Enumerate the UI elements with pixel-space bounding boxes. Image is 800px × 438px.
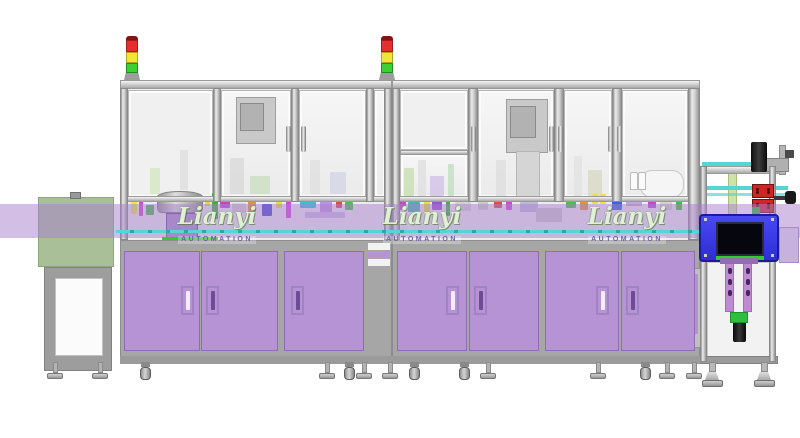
cabinet-door-handle (206, 286, 219, 315)
cabinet-door-handle (291, 286, 304, 315)
lens-column (743, 262, 752, 312)
leveling-foot (478, 362, 498, 379)
machine-part (418, 160, 426, 196)
lens-mount (730, 312, 748, 323)
machine-part (180, 150, 188, 190)
cabinet-door-handle (626, 286, 639, 315)
lens-column (725, 262, 734, 312)
handwheel (785, 191, 796, 204)
station-post (700, 166, 707, 362)
leveling-foot (90, 362, 110, 379)
door-handle (608, 126, 613, 152)
watermark-subtitle: AUTOMATION (178, 236, 256, 244)
tower-base (124, 73, 140, 80)
machine-part (574, 156, 582, 196)
leveling-foot (684, 362, 704, 379)
camera-window (716, 222, 764, 256)
door-handle (286, 126, 291, 152)
machine-part (448, 164, 454, 196)
tower-red-light (126, 40, 138, 52)
tower-yellow-light (381, 52, 393, 63)
machine-part (150, 168, 160, 194)
leveling-foot (588, 362, 608, 379)
caster-wheel (454, 362, 474, 380)
caster-wheel (635, 362, 655, 380)
station-side-panel (779, 227, 799, 263)
watermark: Lianyi AUTOMATION (358, 206, 486, 240)
hmi-screen (240, 103, 264, 131)
cad-scene: Lianyi AUTOMATION Lianyi AUTOMATION Lian… (0, 0, 800, 438)
interior-tank (640, 170, 684, 198)
machine-part (250, 176, 270, 194)
machine-part (404, 168, 414, 196)
machine-1-frame-post (366, 88, 374, 202)
camera-lens (733, 323, 746, 342)
machine-1-control-door (128, 90, 213, 198)
watermark-brand: Lianyi (153, 206, 281, 228)
watermark-brand: Lianyi (358, 206, 486, 228)
column-plate (720, 258, 758, 264)
junction-stripe (368, 259, 390, 266)
machine-2-top-rail (392, 80, 700, 89)
door-handle (617, 126, 622, 152)
tower-yellow-light (126, 52, 138, 63)
gantry-motor (751, 142, 767, 172)
hmi-pedestal (516, 151, 540, 199)
leveling-foot (354, 362, 374, 379)
leveling-foot (317, 362, 337, 379)
cabinet-door-handle (596, 286, 609, 315)
signal-tower (381, 36, 393, 80)
door-handle (558, 126, 563, 152)
hmi-screen (510, 106, 536, 138)
tower-red-light (381, 40, 393, 52)
machine-part (430, 176, 444, 196)
door-handle (301, 126, 306, 152)
leveling-foot (754, 362, 774, 387)
bearing-block (752, 184, 774, 198)
leveling-foot (45, 362, 65, 379)
interior-bottle (630, 172, 638, 190)
station-top-plate (702, 162, 758, 166)
machine-part (588, 170, 602, 196)
watermark: Lianyi AUTOMATION (153, 206, 281, 240)
machine-part (330, 172, 346, 194)
machine-2-control-door (400, 90, 468, 150)
signal-tower (126, 36, 138, 80)
machine-1-frame-post (291, 88, 299, 202)
station-frame-panel (707, 262, 771, 358)
leveling-foot (702, 362, 722, 387)
machine-1-frame-post (213, 88, 221, 202)
tower-green-light (381, 63, 393, 73)
machine-part (496, 160, 506, 196)
leveling-foot (657, 362, 677, 379)
caster-wheel (404, 362, 424, 380)
junction-stripe (368, 251, 390, 258)
leveling-foot (380, 362, 400, 379)
interior-bottle (638, 172, 646, 190)
infeed-stand-panel (55, 278, 103, 356)
machine-1-top-rail (120, 80, 392, 89)
cabinet-door-handle (181, 286, 194, 315)
watermark-subtitle: AUTOMATION (383, 236, 461, 244)
tower-green-light (126, 63, 138, 73)
watermark-brand: Lianyi (563, 206, 691, 228)
cabinet-door-handle (474, 286, 487, 315)
machine-1-bottom-rail (120, 196, 392, 202)
watermark-subtitle: AUTOMATION (588, 236, 666, 244)
machine-part (310, 160, 320, 194)
machine-2-bottom-rail (392, 196, 700, 202)
cabinet-door-handle (446, 286, 459, 315)
watermark: Lianyi AUTOMATION (563, 206, 691, 240)
machine-part (230, 158, 244, 194)
tower-base (379, 73, 395, 80)
door-handle (549, 126, 554, 152)
machine-2-mid-rail (400, 150, 468, 155)
tunnel-knob (70, 192, 81, 199)
door-handle (471, 126, 476, 152)
side-sensor (785, 150, 794, 158)
caster-wheel (135, 362, 155, 380)
